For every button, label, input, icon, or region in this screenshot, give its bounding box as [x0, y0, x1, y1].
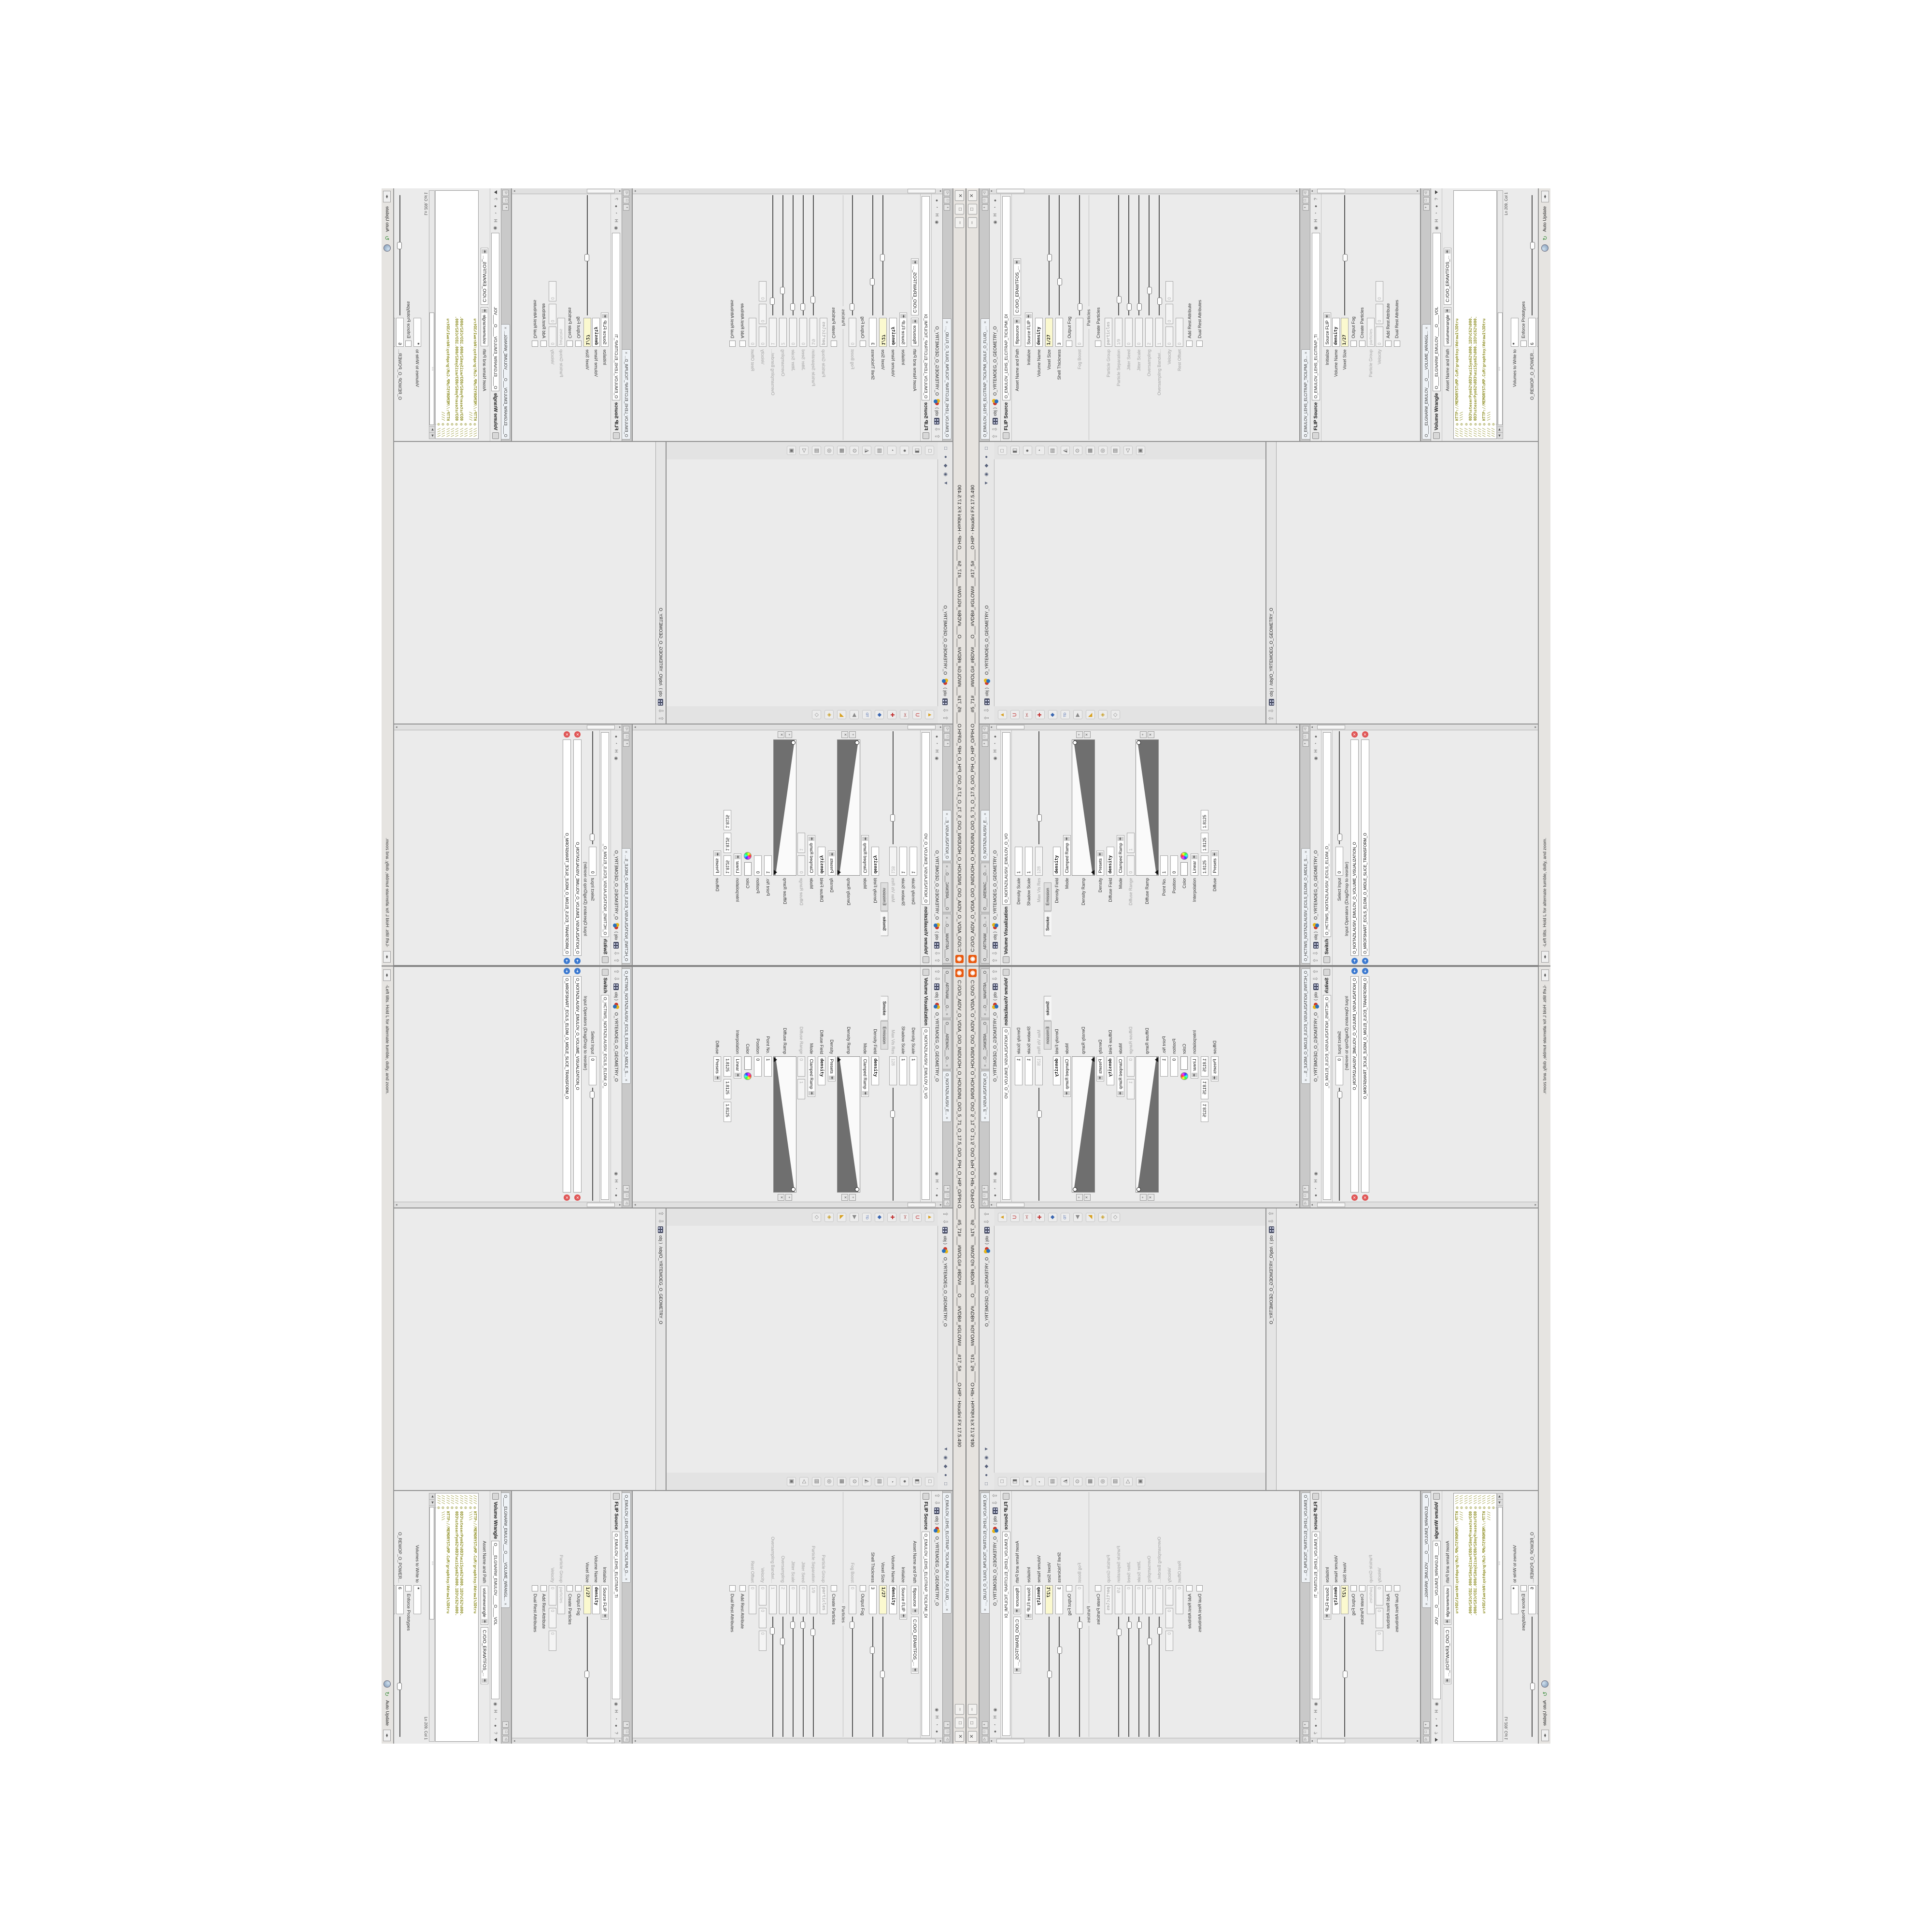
vertical-scrollbar[interactable]: ▲▼: [990, 1202, 1299, 1207]
ramp-button-icon[interactable]: +: [1140, 1194, 1147, 1201]
param-slider[interactable]: [791, 195, 796, 315]
pane-tab[interactable]: O_EMULOV_LEHS_ELCITRAP_TICILPMI_DIULF_O_…: [980, 1492, 989, 1614]
pane-control-icon[interactable]: □: [1423, 197, 1430, 203]
param-field[interactable]: 0: [798, 1056, 806, 1077]
param-field[interactable]: 1/27: [583, 1585, 591, 1614]
pane-control-icon[interactable]: ◁: [623, 1200, 629, 1206]
param-field[interactable]: density: [818, 1056, 826, 1085]
param-field[interactable]: 1.8125: [724, 833, 732, 853]
param-field[interactable]: 1: [1025, 847, 1033, 876]
param-field[interactable]: 6: [396, 1585, 404, 1614]
nav-forward-icon[interactable]: ⇩: [1311, 951, 1321, 956]
color-wheel-icon[interactable]: [744, 852, 752, 860]
param-checkbox[interactable]: [1186, 341, 1193, 347]
slider-thumb[interactable]: [397, 242, 402, 249]
viewer-tool-icon[interactable]: ◆: [875, 1213, 884, 1222]
param-slider[interactable]: [791, 1617, 796, 1737]
nav-back-icon[interactable]: ⇧: [990, 1493, 1000, 1498]
ramp-button-icon[interactable]: +: [1076, 1194, 1083, 1201]
folder-tab[interactable]: Smoke: [1044, 996, 1051, 1021]
param-field[interactable]: 0: [1076, 318, 1083, 347]
param-checkbox[interactable]: [1350, 341, 1357, 347]
nav-forward-icon[interactable]: ⇩: [990, 951, 1000, 956]
header-icon[interactable]: ◉: [614, 755, 619, 761]
param-field[interactable]: 1.8125: [724, 1056, 732, 1077]
param-slider[interactable]: [801, 195, 807, 315]
breadcrumb-path[interactable]: O_YRTEMOEG_O_GEOMETRY_O: [943, 1257, 948, 1327]
param-field[interactable]: density: [592, 1585, 600, 1614]
node-name-field[interactable]: O_EMULOV_LEHS_ELCITRAP_TICILPMI_DI: [922, 1532, 930, 1736]
header-icon[interactable]: ◉: [1313, 225, 1319, 231]
param-field[interactable]: 0: [1376, 1631, 1383, 1651]
nav-back-icon[interactable]: ⇧: [990, 434, 1000, 439]
color-swatch[interactable]: [1180, 862, 1188, 876]
param-dropdown[interactable]: Source FLIP◂▸: [601, 1585, 609, 1619]
param-slider[interactable]: [394, 1617, 394, 1737]
param-field[interactable]: particles: [1105, 1585, 1112, 1614]
param-slider[interactable]: [590, 731, 596, 844]
nav-forward-icon[interactable]: ⇩: [1266, 1219, 1276, 1224]
param-slider[interactable]: [1146, 195, 1152, 315]
input-operator-name[interactable]: O_NOITAZILAUSIV_EMULOV_O_VOLUME_VISUALIZ…: [574, 976, 582, 1193]
param-field[interactable]: *: [1511, 1585, 1519, 1614]
param-checkbox[interactable]: [739, 1585, 746, 1591]
param-field[interactable]: 2: [780, 318, 787, 347]
display-option-icon[interactable]: ●: [900, 1477, 909, 1486]
nav-forward-icon[interactable]: ⇩: [990, 426, 1000, 432]
ramp-button-icon[interactable]: ✕: [841, 1194, 848, 1201]
ramp-button-icon[interactable]: +: [785, 1194, 792, 1201]
breadcrumb-path[interactable]: O_YRTEMOEG_O_GEOMETRY_O: [935, 1012, 939, 1082]
asset-name-dropdown[interactable]: volumewrangle◂▸: [481, 307, 489, 347]
color-swatch[interactable]: [1180, 1056, 1188, 1070]
viewer-tool-icon[interactable]: ◇: [812, 710, 821, 720]
param-checkbox[interactable]: [1520, 341, 1527, 347]
vertical-scrollbar[interactable]: ▲▼: [1310, 1202, 1538, 1207]
pane-control-icon[interactable]: +: [982, 204, 988, 211]
display-option-icon[interactable]: ◭: [862, 446, 871, 455]
header-icon[interactable]: ◉: [993, 1707, 998, 1713]
vex-snippet-editor[interactable]: //// ◎ HTTP://MEMORYST◎MP.C◎M/graphtoy/#…: [1453, 190, 1497, 439]
param-field[interactable]: 0: [790, 1585, 797, 1614]
display-option-icon[interactable]: ▣: [787, 1477, 796, 1486]
display-option-icon[interactable]: ▤: [1048, 1477, 1057, 1486]
vertical-scrollbar[interactable]: ▲▼: [990, 1738, 1299, 1744]
param-checkbox[interactable]: [1066, 1585, 1072, 1591]
display-option-icon[interactable]: ◔: [1036, 1477, 1045, 1486]
param-dropdown[interactable]: Presets◂▸: [1211, 1056, 1219, 1081]
ramp-gradient[interactable]: [1072, 1056, 1095, 1193]
viewer-header-icons[interactable]: ▼◉◆●□: [942, 1446, 949, 1487]
param-slider[interactable]: [1036, 731, 1042, 844]
param-slider[interactable]: [584, 1617, 590, 1737]
ramp-button-icon[interactable]: ✕: [1084, 1194, 1091, 1201]
slider-thumb[interactable]: [811, 1629, 816, 1636]
display-option-icon[interactable]: ▥: [1111, 446, 1120, 455]
breadcrumb-obj[interactable]: obj ⟩: [658, 688, 664, 696]
header-icon[interactable]: ●: [935, 1729, 940, 1734]
header-icon[interactable]: ◔: [935, 205, 940, 211]
breadcrumb-path[interactable]: O_YRTEMOEG_O_GEOMETRY_O: [943, 605, 948, 675]
pane-control-icon[interactable]: +: [1423, 1721, 1430, 1728]
nav-back-icon[interactable]: ⇧: [611, 969, 621, 974]
delete-operator-icon[interactable]: ✕: [564, 1194, 570, 1201]
ramp-handle-right[interactable]: [791, 740, 796, 745]
param-field[interactable]: 0: [849, 1585, 857, 1614]
viewer-tool-icon[interactable]: ◆: [875, 710, 884, 720]
header-icon[interactable]: ◔: [614, 211, 619, 216]
header-icon[interactable]: ◔: [993, 205, 998, 211]
slider-thumb[interactable]: [1147, 287, 1152, 294]
param-dropdown[interactable]: Presets◂▸: [1096, 1056, 1104, 1081]
breadcrumb-obj[interactable]: obj ⟩: [993, 931, 998, 940]
breadcrumb-path[interactable]: O_YRTEMOEG_O_GEOMETRY_O: [993, 1012, 997, 1082]
ramp-button-icon[interactable]: ✕: [1148, 731, 1154, 738]
param-slider[interactable]: [1077, 1617, 1082, 1737]
globe-icon[interactable]: [384, 1680, 391, 1688]
param-field[interactable]: particles: [1105, 318, 1112, 347]
param-field[interactable]: particles: [820, 1585, 828, 1614]
param-field[interactable]: 1/27: [1341, 1585, 1349, 1614]
ramp-button-icon[interactable]: +: [785, 731, 792, 738]
pane-tab[interactable]: O____ARTNAM___O...✕: [980, 914, 989, 964]
param-field[interactable]: 1: [1127, 1079, 1135, 1099]
close-button[interactable]: ✕: [955, 1731, 964, 1742]
nav-back-icon[interactable]: ⇧: [932, 434, 942, 439]
node-name-field[interactable]: O_HCTIWS_NOITAZILAUSIV_ECILS_ELDIM_O_: [1323, 732, 1331, 937]
slider-thumb[interactable]: [590, 834, 595, 841]
breadcrumb-path[interactable]: O_YRTEMOEG_O_GEOMETRY_O: [614, 850, 619, 920]
viewer-tool-icon[interactable]: ◈: [1098, 1213, 1108, 1222]
status-right-cap[interactable]: ◂▸: [384, 191, 391, 202]
viewer-header-icon[interactable]: ◉: [983, 471, 990, 478]
status-right-cap[interactable]: ◂▸: [1541, 1730, 1549, 1741]
pane-control-icon[interactable]: □: [502, 1729, 509, 1735]
header-icon[interactable]: ●: [993, 1729, 998, 1734]
asset-path-dropdown[interactable]: C:/O/O_ERAWTFOS_...◂▸: [1444, 1627, 1451, 1684]
tab-close-icon[interactable]: ✕: [983, 1064, 987, 1067]
breadcrumb-obj[interactable]: obj ⟩: [1313, 992, 1319, 1001]
param-slider[interactable]: [394, 195, 394, 315]
pane-tab[interactable]: O_EMULOV_LEHS_ELCITRAP_TICILPMI_D...✕: [1301, 1492, 1310, 1583]
param-field[interactable]: 0: [1135, 1585, 1143, 1614]
param-dropdown[interactable]: Clamped Ramp◂▸: [808, 1056, 816, 1097]
network-path[interactable]: /obj/O_YRTEMOEG_O_GEOMETRY_O: [658, 608, 663, 685]
slider-thumb[interactable]: [891, 1110, 895, 1118]
pane-control-icon[interactable]: ◁: [982, 1200, 988, 1206]
slider-thumb[interactable]: [801, 303, 806, 311]
viewer-tool-icon[interactable]: ✚: [1036, 710, 1045, 720]
header-icon[interactable]: ◉: [1434, 1701, 1439, 1707]
display-option-icon[interactable]: ▦: [837, 1477, 846, 1486]
pane-control-icon[interactable]: +: [1303, 1185, 1309, 1192]
header-icon[interactable]: ●: [935, 1193, 940, 1198]
pane-control-icon[interactable]: □: [623, 1193, 629, 1199]
reorder-handle-icon[interactable]: ➜: [564, 968, 570, 974]
ramp-widget[interactable]: +✕: [1136, 1056, 1159, 1201]
param-slider[interactable]: [881, 195, 886, 315]
nav-back-icon[interactable]: ⇧: [932, 1493, 942, 1498]
param-field[interactable]: 1.8125: [1201, 1102, 1208, 1122]
pane-control-icon[interactable]: □: [944, 1729, 950, 1735]
slider-thumb[interactable]: [881, 1671, 885, 1678]
pane-control-icon[interactable]: □: [982, 1193, 988, 1199]
header-icon[interactable]: ●: [1313, 734, 1319, 739]
ramp-handle-left[interactable]: [774, 870, 777, 875]
pane-control-icon[interactable]: +: [944, 740, 950, 747]
param-field[interactable]: 0: [790, 318, 797, 347]
viewer-header-icon[interactable]: ◆: [942, 1463, 949, 1470]
tab-close-icon[interactable]: ✕: [945, 1064, 949, 1067]
ramp-button-icon[interactable]: ✕: [778, 1194, 784, 1201]
node-name-field[interactable]: O_NOITAZILAUSIV_EMULOV_O_VO: [922, 732, 930, 905]
param-dropdown[interactable]: Source FLIP◂▸: [1323, 1585, 1331, 1619]
node-name-field[interactable]: O_EMULOV_LEHS_ELCITRAP_TICILPMI_DI: [1002, 1532, 1010, 1736]
header-icon[interactable]: ●: [1313, 203, 1319, 209]
asset-name-dropdown[interactable]: flipsource◂▸: [1013, 1586, 1021, 1615]
header-icon[interactable]: ◉: [935, 219, 940, 225]
pane-control-icon[interactable]: □: [1303, 197, 1309, 203]
display-option-icon[interactable]: ◁: [1123, 446, 1133, 455]
nav-back-icon[interactable]: ⇧: [932, 958, 942, 963]
viewer-tool-icon[interactable]: TD: [1061, 710, 1070, 720]
pane-control-icon[interactable]: ◁: [1423, 1736, 1430, 1742]
header-icon[interactable]: H: [1313, 218, 1319, 224]
header-icon[interactable]: ?: [1313, 1730, 1319, 1736]
param-slider[interactable]: [891, 731, 896, 844]
param-field[interactable]: particles: [557, 1585, 565, 1614]
param-checkbox[interactable]: [1385, 1585, 1392, 1591]
display-option-icon[interactable]: ⊙: [850, 446, 859, 455]
viewer-header-icons[interactable]: ▼◉◆●□: [942, 445, 949, 486]
header-icon[interactable]: ●: [935, 734, 940, 739]
viewer-header-icon[interactable]: ▼: [942, 1446, 949, 1452]
ramp-button-icon[interactable]: +: [1140, 731, 1147, 738]
ramp-handle-right[interactable]: [1073, 1187, 1077, 1192]
param-dropdown[interactable]: Source FLIP◂▸: [1025, 313, 1033, 347]
breadcrumb-obj[interactable]: obj ⟩: [993, 1516, 998, 1525]
param-field[interactable]: 0: [1125, 1585, 1133, 1614]
pane-control-icon[interactable]: +: [944, 204, 950, 211]
display-option-icon[interactable]: ◎: [824, 1477, 834, 1486]
asset-name-dropdown[interactable]: volumewrangle◂▸: [1444, 307, 1451, 347]
vertical-scrollbar[interactable]: ▲▼: [1310, 188, 1420, 194]
nav-forward-icon[interactable]: ⇩: [656, 1219, 666, 1224]
display-option-icon[interactable]: ▤: [875, 1477, 884, 1486]
param-field[interactable]: 0: [1135, 318, 1143, 347]
nav-forward-icon[interactable]: ⇩: [982, 1219, 992, 1224]
vertical-scrollbar[interactable]: ▲▼: [512, 1738, 622, 1744]
param-dropdown[interactable]: Source FLIP◂▸: [1025, 1585, 1033, 1619]
param-checkbox[interactable]: [576, 341, 582, 347]
nav-back-icon[interactable]: ⇧: [990, 958, 1000, 963]
param-checkbox[interactable]: [1520, 1585, 1527, 1591]
header-icon[interactable]: ◔: [1434, 211, 1439, 216]
param-field[interactable]: 0: [1376, 327, 1383, 347]
param-dropdown[interactable]: Source FLIP◂▸: [601, 313, 609, 347]
param-field[interactable]: 3: [1055, 318, 1063, 347]
maximize-button[interactable]: □: [968, 204, 977, 214]
slider-thumb[interactable]: [1057, 1647, 1062, 1654]
nav-back-icon[interactable]: ⇧: [982, 715, 992, 721]
pane-control-icon[interactable]: ◁: [944, 1200, 950, 1206]
param-field[interactable]: 1/9: [1115, 1585, 1122, 1614]
pane-control-icon[interactable]: ◁: [1303, 1200, 1309, 1206]
param-field[interactable]: 1: [910, 847, 918, 876]
viewer-tool-icon[interactable]: ◇: [812, 1213, 821, 1222]
node-name-field[interactable]: O_HCTIWS_NOITAZILAUSIV_ECILS_ELDIM_O_: [601, 732, 610, 937]
header-icon[interactable]: ◉: [1313, 1701, 1319, 1707]
color-wheel-icon[interactable]: [744, 1072, 752, 1080]
input-operator-name[interactable]: O_MROFSNART_ECILS_ELDIM_O_MIDLE_SLICE_TR…: [1361, 976, 1369, 1193]
pane-control-icon[interactable]: □: [1303, 1193, 1309, 1199]
param-field[interactable]: 2: [1145, 318, 1153, 347]
param-field[interactable]: 2: [1145, 1585, 1153, 1614]
tab-close-icon[interactable]: ✕: [945, 1013, 949, 1016]
header-icon[interactable]: ◔: [1434, 1716, 1439, 1721]
maximize-button[interactable]: □: [968, 1718, 977, 1728]
viewer-header-icon[interactable]: ◆: [942, 462, 949, 469]
header-icon[interactable]: H: [614, 748, 619, 754]
nav-back-icon[interactable]: ⇧: [990, 969, 1000, 974]
param-slider[interactable]: [1046, 1617, 1052, 1737]
param-field[interactable]: 0: [759, 304, 767, 324]
pane-control-icon[interactable]: ◁: [1303, 726, 1309, 732]
param-slider[interactable]: [881, 1617, 886, 1737]
auto-update-dropdown[interactable]: Auto Update: [1542, 1700, 1548, 1726]
param-checkbox[interactable]: [1196, 1585, 1203, 1591]
viewer-tool-icon[interactable]: ✚: [887, 1213, 896, 1222]
pane-control-icon[interactable]: □: [944, 1193, 950, 1199]
code-horizontal-scrollbar[interactable]: ◀▶: [1497, 190, 1503, 439]
node-name-field[interactable]: O_EMULOV_LEHS_ELCITRAP_TI: [1312, 1532, 1320, 1699]
vertical-scrollbar[interactable]: ▲▼: [633, 1738, 942, 1744]
ramp-handle-right[interactable]: [791, 1187, 796, 1192]
node-name-field[interactable]: O_EMULOV_LEHS_ELCITRAP_TI: [612, 233, 621, 400]
tab-close-icon[interactable]: ✕: [1425, 327, 1429, 329]
param-checkbox[interactable]: [739, 341, 746, 347]
param-slider[interactable]: [1126, 1617, 1132, 1737]
header-icon[interactable]: ●: [993, 734, 998, 739]
pin-icon[interactable]: [494, 190, 497, 194]
param-field[interactable]: 0: [1165, 1585, 1173, 1605]
pane-control-icon[interactable]: □: [944, 733, 950, 739]
pane-control-icon[interactable]: +: [502, 204, 509, 211]
ramp-gradient[interactable]: [837, 1056, 860, 1193]
input-operator-name[interactable]: O_NOITAZILAUSIV_EMULOV_O_VOLUME_VISUALIZ…: [574, 739, 582, 956]
nav-back-icon[interactable]: ⇧: [982, 1211, 992, 1217]
tab-close-icon[interactable]: ✕: [983, 321, 987, 324]
param-slider[interactable]: [1036, 1088, 1042, 1201]
header-icon[interactable]: ?: [493, 196, 498, 202]
param-checkbox[interactable]: [1385, 341, 1392, 347]
vex-snippet-editor[interactable]: //// ◎ HTTP://MEMORYST◎MP.C◎M/graphtoy/#…: [1453, 1493, 1497, 1742]
tab-close-icon[interactable]: ✕: [1304, 851, 1308, 853]
param-field[interactable]: *: [1511, 318, 1519, 347]
pane-control-icon[interactable]: +: [944, 1185, 950, 1192]
param-field[interactable]: 0: [1165, 327, 1173, 347]
viewer-tool-icon[interactable]: ▶: [850, 710, 859, 720]
breadcrumb-path[interactable]: O_YRTEMOEG_O_GEOMETRY_O: [1313, 850, 1318, 920]
nav-back-icon[interactable]: ⇧: [1266, 1211, 1276, 1216]
param-dropdown[interactable]: Clamped Ramp◂▸: [1117, 1056, 1124, 1097]
param-field[interactable]: 1: [798, 833, 806, 853]
param-field[interactable]: 0: [754, 855, 762, 876]
pane-control-icon[interactable]: +: [1423, 204, 1430, 211]
param-slider[interactable]: [811, 1617, 817, 1737]
header-icon[interactable]: ◔: [993, 1721, 998, 1727]
param-slider[interactable]: [1146, 1617, 1152, 1737]
param-slider[interactable]: [850, 195, 856, 315]
header-icon[interactable]: H: [993, 1714, 998, 1720]
vertical-scrollbar[interactable]: ▲▼: [633, 724, 942, 730]
viewer-tool-icon[interactable]: ◣: [1086, 1213, 1095, 1222]
display-option-icon[interactable]: □: [998, 446, 1007, 455]
globe-icon[interactable]: [1541, 1680, 1548, 1688]
param-dropdown[interactable]: Clamped Ramp◂▸: [1063, 1056, 1071, 1097]
delete-operator-icon[interactable]: ✕: [1351, 731, 1358, 738]
display-option-icon[interactable]: □: [925, 446, 934, 455]
pane-control-icon[interactable]: □: [1303, 733, 1309, 739]
minimize-button[interactable]: –: [955, 217, 964, 228]
param-field[interactable]: particles: [820, 318, 828, 347]
header-icon[interactable]: ◔: [614, 1185, 619, 1191]
network-path[interactable]: /obj/O_YRTEMOEG_O_GEOMETRY_O: [1269, 608, 1274, 685]
color-wheel-icon[interactable]: [1180, 852, 1188, 860]
minimize-button[interactable]: –: [968, 1704, 977, 1715]
display-option-icon[interactable]: □: [998, 1477, 1007, 1486]
header-icon[interactable]: H: [1313, 748, 1319, 754]
maximize-button[interactable]: □: [955, 204, 964, 214]
param-checkbox[interactable]: [576, 1585, 582, 1591]
slider-thumb[interactable]: [870, 278, 875, 285]
asset-path-dropdown[interactable]: C:/O/O_ERAWTFOS_...◂▸: [911, 258, 919, 315]
ramp-gradient[interactable]: [773, 1056, 796, 1193]
display-option-icon[interactable]: ◭: [1061, 446, 1070, 455]
param-field[interactable]: 0: [1076, 1585, 1083, 1614]
header-icon[interactable]: ◔: [614, 741, 619, 747]
folder-tab[interactable]: Emission: [1044, 1021, 1051, 1050]
header-icon[interactable]: ●: [993, 1193, 998, 1198]
display-option-icon[interactable]: ⊙: [1073, 446, 1082, 455]
breadcrumb-obj[interactable]: obj ⟩: [614, 992, 619, 1001]
breadcrumb-obj[interactable]: obj ⟩: [943, 687, 948, 696]
viewer-tool-icon[interactable]: ✚: [887, 710, 896, 720]
breadcrumb-obj[interactable]: obj ⟩: [658, 1236, 664, 1244]
viewer-header-icon[interactable]: □: [983, 1480, 990, 1487]
ramp-button-icon[interactable]: +: [849, 1194, 856, 1201]
vertical-scrollbar[interactable]: ▲▼: [1310, 724, 1538, 730]
breadcrumb-path[interactable]: O_YRTEMOEG_O_GEOMETRY_O: [614, 1012, 619, 1082]
param-field[interactable]: 1: [798, 1079, 806, 1099]
param-field[interactable]: 1: [1127, 833, 1135, 853]
pane-tab[interactable]: O_NOITAZILAUSIV_E...✕: [980, 1071, 989, 1122]
title-bar[interactable]: ◉ C:/O/O_AIDV_O_VDIA_O/O_INIDUOH_O_HOUDI…: [966, 966, 979, 1744]
pane-control-icon[interactable]: □: [623, 1729, 629, 1735]
maximize-button[interactable]: □: [955, 1718, 964, 1728]
display-option-icon[interactable]: ▦: [1086, 446, 1095, 455]
param-dropdown[interactable]: Presets◂▸: [1096, 851, 1104, 876]
slider-thumb[interactable]: [1057, 278, 1062, 285]
reorder-handle-icon[interactable]: ➜: [575, 968, 581, 974]
ramp-handle-right[interactable]: [855, 740, 859, 745]
ramp-button-icon[interactable]: ✕: [1084, 731, 1091, 738]
param-field[interactable]: 1: [1025, 1056, 1033, 1085]
header-icon[interactable]: H: [935, 212, 940, 218]
viewer-tool-icon[interactable]: ▲: [998, 710, 1007, 720]
ramp-handle-left[interactable]: [1091, 1057, 1094, 1062]
breadcrumb-obj[interactable]: obj ⟩: [935, 407, 940, 416]
